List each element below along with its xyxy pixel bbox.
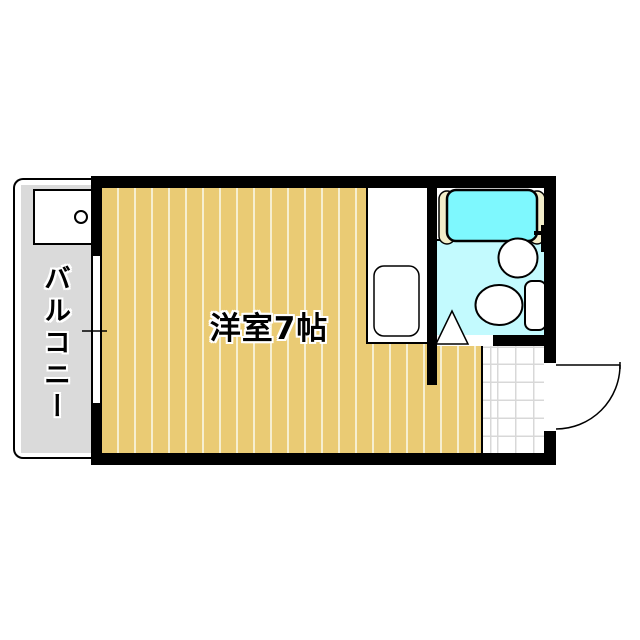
- entrance-door-swing-icon: [556, 365, 620, 429]
- main-room-label: 洋室7帖: [179, 303, 359, 348]
- kitchen-sink-icon: [374, 266, 419, 336]
- wash-basin-icon: [499, 239, 538, 278]
- wall-bathroom-left: [427, 188, 437, 385]
- wall-bottom: [91, 453, 556, 465]
- wall-right-upper: [544, 176, 556, 363]
- toilet-icon: [476, 285, 523, 325]
- floor-plan-canvas: 洋室7帖 バルコニー: [0, 0, 640, 640]
- entrance-door-leaf: [556, 362, 620, 369]
- bath-door-triangle-icon: [436, 311, 468, 344]
- bathtub-icon: [447, 190, 537, 241]
- toilet-tank-icon: [525, 281, 546, 330]
- wall-right-lower: [544, 431, 556, 465]
- wall-left-lower: [91, 403, 102, 453]
- wall-left-upper: [91, 188, 102, 256]
- wall-top: [91, 176, 556, 188]
- wall-bathroom-bottom: [493, 335, 544, 346]
- balcony-label: バルコニー: [41, 264, 68, 444]
